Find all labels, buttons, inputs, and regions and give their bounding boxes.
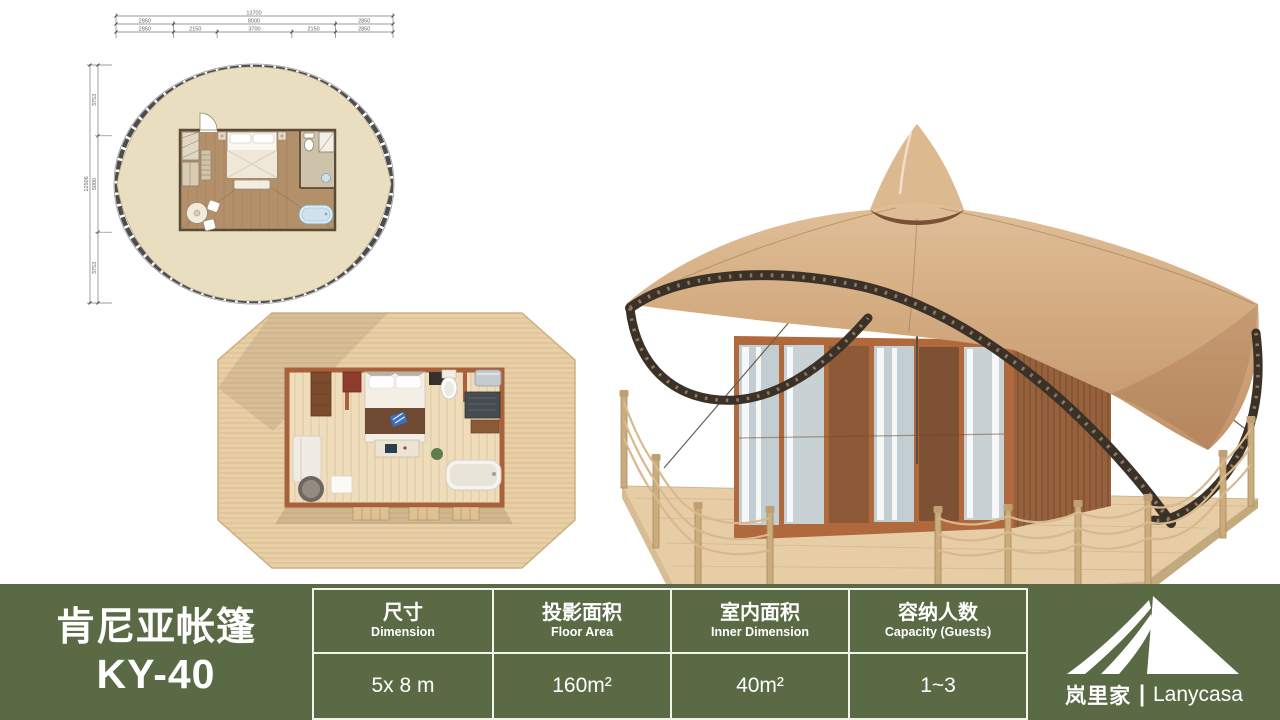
bathtub-basin: [450, 464, 497, 486]
header-cn: 尺寸: [383, 602, 423, 625]
svg-text:3753: 3753: [92, 94, 98, 106]
sink-plan: [322, 174, 331, 183]
svg-text:2850: 2850: [139, 19, 151, 25]
brand-name-cn: 岚里家: [1065, 680, 1131, 710]
header-en: Dimension: [371, 625, 435, 639]
svg-text:2850: 2850: [139, 27, 151, 33]
bathtub-faucet: [492, 472, 496, 476]
spec-header: 尺寸 Dimension: [314, 590, 492, 654]
toilet-tank: [304, 133, 314, 138]
header-cn: 容纳人数: [898, 602, 978, 625]
product-model: KY-40: [97, 651, 216, 698]
spec-table: 肯尼亚帐篷 KY-40 尺寸 Dimension 5x 8 m 投影面积 Flo…: [0, 584, 1280, 720]
cone-cap: [870, 124, 964, 210]
round-chair-cushion: [302, 480, 320, 498]
dimension-lines-top: [116, 13, 393, 38]
glass-doors: [739, 342, 1004, 530]
svg-text:13700: 13700: [246, 11, 261, 17]
svg-text:2150: 2150: [307, 27, 319, 33]
spec-value: 1~3: [850, 654, 1026, 718]
sofa-overhead: [293, 436, 321, 482]
svg-text:3700: 3700: [248, 27, 260, 33]
header-en: Inner Dimension: [711, 625, 809, 639]
brand-separator: |: [1139, 682, 1145, 708]
header-cn: 室内面积: [720, 602, 800, 625]
svg-text:2850: 2850: [358, 27, 370, 33]
header-en: Floor Area: [551, 625, 613, 639]
dimension-labels-left: 12506 3753 5000 3753: [84, 94, 98, 274]
laptop: [385, 444, 397, 453]
product-sheet: 13700 2850 8000 2850 2850 2150 3700 2150…: [0, 0, 1280, 720]
toilet-plan: [305, 139, 314, 151]
overhead-svg: [213, 306, 581, 584]
floor-plan-drawing: 13700 2850 8000 2850 2850 2150 3700 2150…: [78, 8, 410, 310]
svg-text:12506: 12506: [84, 176, 90, 191]
svg-text:5000: 5000: [92, 178, 98, 190]
pillow-overhead: [396, 376, 421, 388]
brand-name-en: Lanycasa: [1153, 683, 1243, 707]
brand-logo: 岚里家 | Lanycasa: [1028, 584, 1280, 720]
tent-svg: [606, 98, 1271, 585]
product-name-cn: 肯尼亚帐篷: [56, 606, 256, 651]
red-item: [403, 446, 406, 449]
wood-shelf: [471, 420, 499, 433]
door-steps: [353, 507, 479, 520]
plant: [431, 448, 443, 460]
pillow-overhead: [369, 376, 394, 388]
appliance-unit: [465, 392, 500, 418]
bathtub-drain: [325, 213, 328, 216]
svg-text:2850: 2850: [358, 19, 370, 25]
svg-text:8000: 8000: [248, 19, 260, 25]
toilet-seat: [444, 382, 454, 397]
svg-text:3753: 3753: [92, 262, 98, 274]
tent-render-3d: [606, 98, 1271, 585]
overhead-view-3d: [213, 306, 581, 584]
spec-col-dimension: 尺寸 Dimension 5x 8 m: [314, 590, 492, 718]
spec-value: 160m²: [494, 654, 670, 718]
product-title: 肯尼亚帐篷 KY-40: [0, 584, 312, 720]
spec-header: 室内面积 Inner Dimension: [672, 590, 848, 654]
spec-header: 投影面积 Floor Area: [494, 590, 670, 654]
spec-value: 40m²: [672, 654, 848, 718]
tent-logo-icon: [1061, 594, 1247, 678]
spec-col-capacity: 容纳人数 Capacity (Guests) 1~3: [848, 590, 1026, 718]
water-heater: [475, 370, 501, 386]
header-en: Capacity (Guests): [885, 625, 991, 639]
closet-plan: [182, 132, 199, 160]
table-center: [194, 210, 200, 216]
dimension-lines-left: [87, 65, 112, 303]
pillow: [230, 134, 251, 143]
spec-value: 5x 8 m: [314, 654, 492, 718]
brand-text: 岚里家 | Lanycasa: [1065, 680, 1243, 710]
spec-col-floor-area: 投影面积 Floor Area 160m²: [492, 590, 670, 718]
svg-text:2150: 2150: [189, 27, 201, 33]
header-cn: 投影面积: [542, 602, 622, 625]
spec-header: 容纳人数 Capacity (Guests): [850, 590, 1026, 654]
bed-bench: [234, 180, 270, 189]
pillow: [253, 134, 274, 143]
spec-grid: 尺寸 Dimension 5x 8 m 投影面积 Floor Area 160m…: [312, 588, 1028, 720]
spec-col-inner-dimension: 室内面积 Inner Dimension 40m²: [670, 590, 848, 718]
wardrobe-plan: [182, 162, 199, 186]
side-table-overhead: [331, 476, 352, 493]
floor-plan-svg: 13700 2850 8000 2850 2850 2150 3700 2150…: [78, 8, 410, 310]
red-cabinet: [343, 372, 361, 392]
